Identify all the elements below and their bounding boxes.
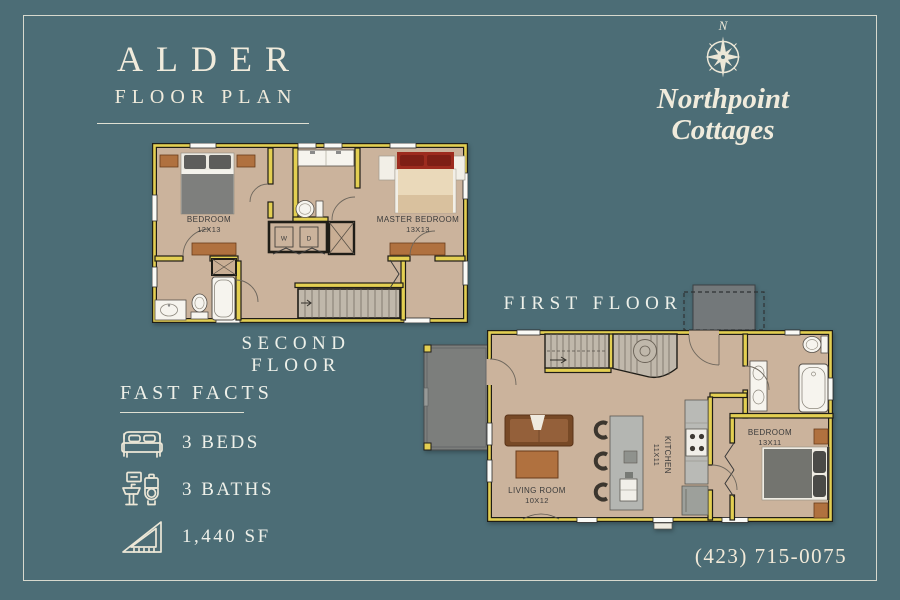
porch (424, 345, 489, 450)
bath-icon (120, 471, 164, 509)
nightstand (160, 155, 178, 167)
linen-closet (329, 222, 354, 254)
fast-facts-underline (120, 412, 244, 413)
title-underline (97, 123, 309, 124)
stoop (693, 285, 755, 330)
master-bedroom-dims: 13X13 (406, 225, 430, 234)
first-floor-plan: LIVING ROOM 10X12 KITCHEN 11X11 BEDROOM … (423, 283, 835, 533)
area-icon (120, 519, 164, 555)
beds-label: 3 BEDS (182, 432, 260, 454)
compass-icon: N (700, 16, 746, 84)
fact-row-area: 1,440 SF (120, 520, 310, 554)
phone-number: (423) 715-0075 (650, 544, 892, 569)
stove (686, 429, 707, 456)
fact-row-beds: 3 BEDS (120, 426, 310, 460)
baths-label: 3 BATHS (182, 479, 274, 501)
brand-name: Northpoint Cottages (600, 84, 846, 146)
fact-row-baths: 3 BATHS (120, 473, 310, 507)
kitchen-dims: 11X11 (652, 444, 661, 467)
nightstand (814, 429, 828, 444)
fast-facts-title: FAST FACTS (120, 382, 310, 405)
brand-name-line2: Cottages (600, 115, 846, 146)
entry-door-opening (689, 331, 719, 336)
brand-name-line1: Northpoint (600, 84, 846, 115)
bedroom-dims: 13X11 (758, 438, 781, 447)
dresser (192, 243, 236, 255)
bed-icon (120, 426, 164, 460)
stairs (298, 289, 400, 318)
bedroom-dims: 12X13 (197, 225, 221, 234)
floor-plan-flyer: ALDER FLOOR PLAN N Northpoint Cottages (0, 0, 900, 600)
fast-facts: FAST FACTS 3 BEDS (120, 382, 310, 554)
page-title: ALDER (96, 38, 323, 80)
compass-north-label: N (718, 18, 729, 33)
nightstand (237, 155, 255, 167)
bedroom-bed (181, 153, 234, 214)
master-bedroom-label: MASTER BEDROOM (377, 215, 460, 224)
bedroom-label: BEDROOM (748, 428, 792, 437)
area-label: 1,440 SF (182, 526, 271, 548)
second-floor-plan: W D (152, 143, 468, 323)
living-room-label: LIVING ROOM (508, 486, 566, 495)
bedroom-label: BEDROOM (187, 215, 231, 224)
title-block: ALDER FLOOR PLAN (96, 38, 310, 124)
living-room-dims: 10X12 (525, 496, 549, 505)
washer-label: W (281, 236, 288, 243)
second-floor-label: SECOND FLOOR (196, 333, 396, 377)
page-subtitle: FLOOR PLAN (96, 86, 316, 109)
nightstand (814, 503, 828, 518)
porch-door-opening (487, 359, 493, 385)
dresser (390, 243, 445, 255)
kitchen-label: KITCHEN (663, 436, 672, 474)
dryer-label: D (307, 236, 312, 243)
coffee-table (516, 451, 558, 478)
